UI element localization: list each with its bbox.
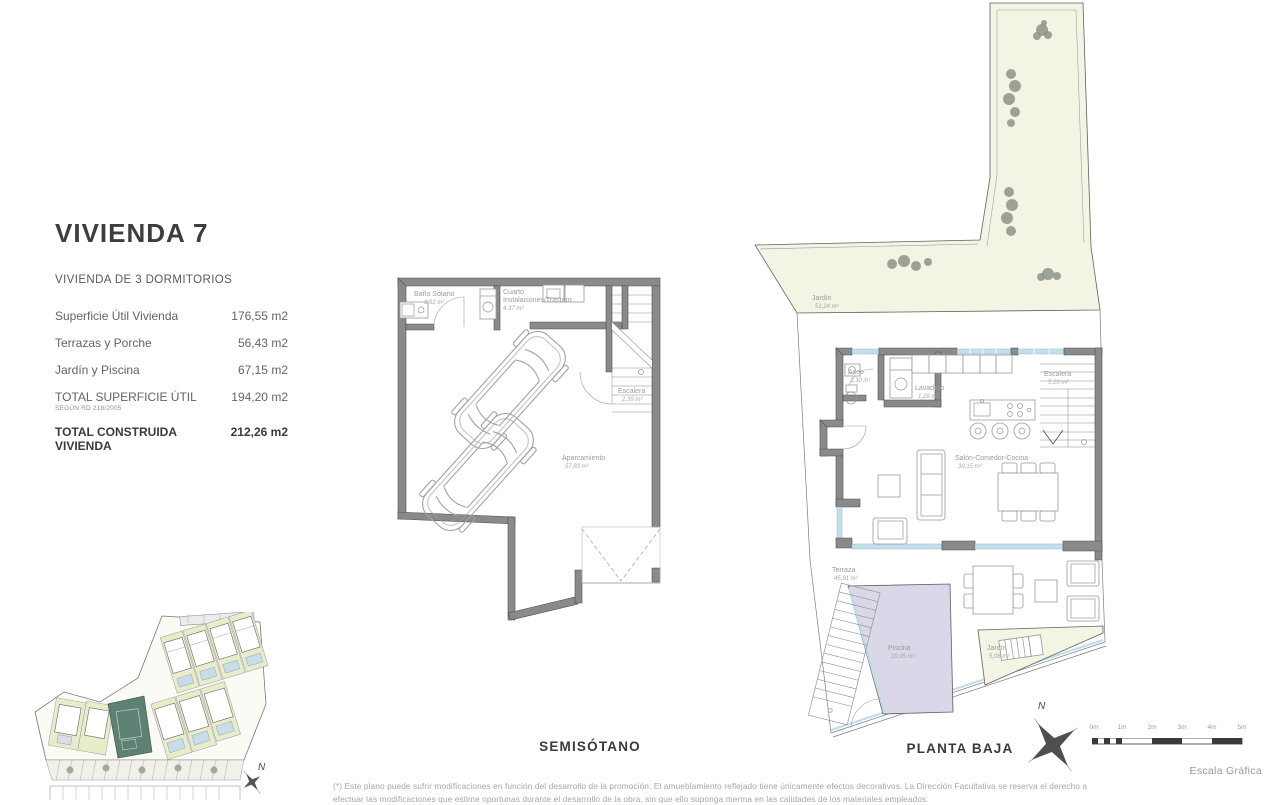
scale-tick: 4m <box>1207 724 1216 731</box>
scale-tick: 2m <box>1147 724 1156 731</box>
room-area-escalera: 2,39 m² <box>621 397 643 403</box>
sun-lounger-icon <box>1067 596 1099 621</box>
room-area-piscina: 10,95 m² <box>891 654 916 660</box>
room-area-cuarto: 4,37 m² <box>503 306 524 312</box>
compass-n-label: N <box>258 762 266 773</box>
room-area-jardin-grande: 51,24 m² <box>815 304 840 310</box>
semisotano-doors <box>434 297 612 404</box>
scale-tick: 5m <box>1237 724 1246 731</box>
room-area-terraza: 45,91 m² <box>834 576 859 582</box>
scale-tick: 0m <box>1089 724 1098 731</box>
room-label-piscina: Piscina <box>888 645 911 652</box>
row-value: 212,26 m2 <box>208 425 288 439</box>
row-value: 56,43 m2 <box>208 336 288 350</box>
room-label-aseo: Aseo <box>848 369 864 376</box>
info-panel: VIVIENDA 7 VIVIENDA DE 3 DORMITORIOS Sup… <box>55 218 288 466</box>
footnote-line-2: efectuar las modificaciones que estime o… <box>333 793 1278 805</box>
room-area-aparcamiento: 57,83 m² <box>565 464 590 470</box>
site-plan: N <box>30 612 300 800</box>
table-row-total-util: TOTAL SUPERFICIE ÚTIL SEGÚN RD 218/2005 … <box>55 390 288 412</box>
dining-table-icon <box>998 463 1058 521</box>
scale-bar-graphic <box>1092 738 1246 746</box>
room-area-salon: 39,15 m² <box>958 464 983 470</box>
row-value: 176,55 m2 <box>208 309 288 323</box>
footnote-line-1: (*) Este plano puede sufrir modificacion… <box>333 780 1278 793</box>
room-label-escalera: Escalera <box>618 388 645 395</box>
row-value: 194,20 m2 <box>208 390 288 404</box>
table-row: Superficie Útil Vivienda 176,55 m2 <box>55 309 288 323</box>
surface-table: Superficie Útil Vivienda 176,55 m2 Terra… <box>55 309 288 453</box>
row-label: Jardín y Piscina <box>55 363 208 377</box>
terrace-side-table-icon <box>1035 580 1057 602</box>
garden-area <box>755 3 1100 313</box>
compass-n-label: N <box>1038 701 1046 712</box>
sun-lounger-icon <box>1067 561 1099 586</box>
sofa-icon <box>917 450 945 520</box>
scale-tick: 3m <box>1177 724 1186 731</box>
room-label-escalera-pb: Escalera <box>1044 371 1071 378</box>
room-area-escalera-pb: 5,10 m² <box>1048 380 1069 386</box>
garage-door-icon <box>582 527 660 583</box>
table-row: Jardín y Piscina 67,15 m2 <box>55 363 288 377</box>
semisotano-walls <box>398 278 660 620</box>
room-label-aparcamiento: Aparcamiento <box>562 455 605 462</box>
room-label-jardin-peq: Jardín <box>987 645 1007 652</box>
terrace-door-arc <box>851 699 881 728</box>
semisotano-floorplan: Baño Sótano 3,92 m² Cuarto Instalaciones… <box>394 272 666 634</box>
room-label-lavadero: Lavadero <box>915 385 944 392</box>
room-area-aseo: 3,30 m² <box>850 378 871 384</box>
room-area-jardin-peq: 5,06 m² <box>989 654 1010 660</box>
page-title: VIVIENDA 7 <box>55 218 288 249</box>
row-label: Terrazas y Porche <box>55 336 208 350</box>
room-label-cuarto2: Instalaciones/Trastero <box>503 297 572 304</box>
row-label: TOTAL CONSTRUIDA VIVIENDA <box>55 425 208 453</box>
room-label-salon: Salón-Comedor-Cocina <box>955 455 1028 462</box>
site-left-villas <box>48 696 114 755</box>
table-row-total-construida: TOTAL CONSTRUIDA VIVIENDA 212,26 m2 <box>55 425 288 453</box>
room-label-jardin-grande: Jardín <box>812 295 832 302</box>
terrace-table-icon <box>964 566 1023 614</box>
table-row: Terrazas y Porche 56,43 m2 <box>55 336 288 350</box>
caption-semisotano: SEMISÓTANO <box>495 739 685 754</box>
row-note: SEGÚN RD 218/2005 <box>55 405 208 412</box>
room-area-bano: 3,92 m² <box>424 300 445 306</box>
scale-caption: Escala Gráfica <box>1092 765 1262 777</box>
row-value: 67,15 m2 <box>208 363 288 377</box>
armchair-icon <box>873 518 907 544</box>
scale-tick: 1m <box>1117 724 1126 731</box>
washing-machine-icon <box>480 289 496 319</box>
room-label-cuarto: Cuarto <box>503 289 524 296</box>
row-label: Superficie Útil Vivienda <box>55 309 208 323</box>
row-label: TOTAL SUPERFICIE ÚTIL SEGÚN RD 218/2005 <box>55 390 208 412</box>
compass-icon: N <box>1020 693 1092 781</box>
page-subtitle: VIVIENDA DE 3 DORMITORIOS <box>55 274 288 286</box>
laundry-machine-icon <box>890 358 912 398</box>
side-table-icon <box>878 475 900 497</box>
car-icon <box>444 322 575 459</box>
room-area-lavadero: 1,28 m² <box>918 394 939 400</box>
room-label-bano: Baño Sótano <box>414 291 455 298</box>
site-road <box>46 760 244 800</box>
row-label-text: TOTAL SUPERFICIE ÚTIL <box>55 390 197 404</box>
footnote: (*) Este plano puede sufrir modificacion… <box>333 780 1278 805</box>
scale-ticks: 0m 1m 2m 3m 4m 5m <box>1092 724 1262 733</box>
planta-baja-floorplan: Jardín 51,24 m² Aseo 3,30 m² Lavadero 1,… <box>748 0 1116 738</box>
scale-bar: 0m 1m 2m 3m 4m 5m Escala Gráfica <box>1092 724 1262 777</box>
room-label-terraza: Terraza <box>832 567 855 574</box>
